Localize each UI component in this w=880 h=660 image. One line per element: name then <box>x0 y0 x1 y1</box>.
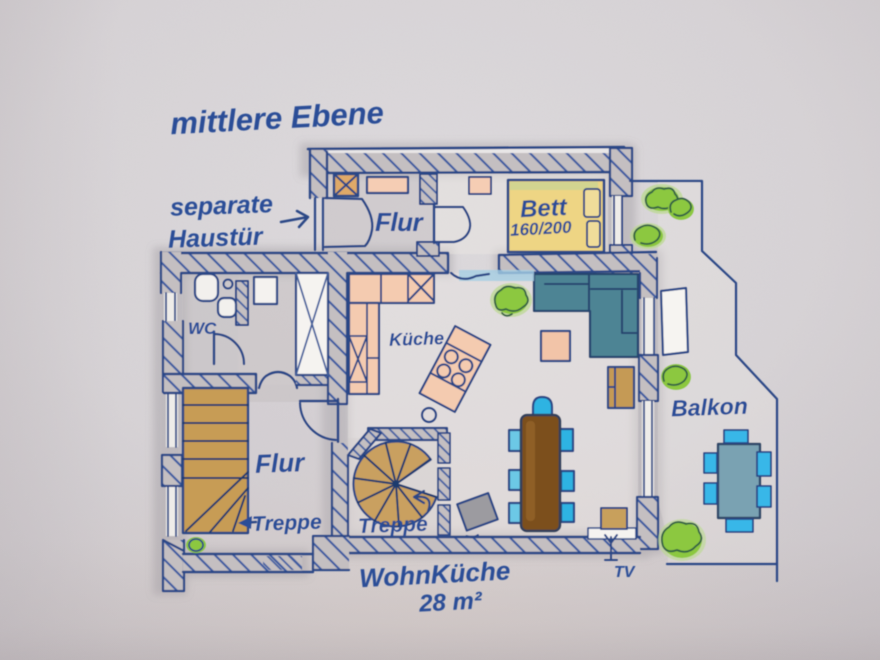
svg-text:Balkon: Balkon <box>671 393 749 422</box>
svg-text:160/200: 160/200 <box>510 218 573 240</box>
svg-text:Haustür: Haustür <box>168 222 265 253</box>
svg-text:separate: separate <box>170 190 274 222</box>
svg-text:Flur: Flur <box>255 447 307 479</box>
svg-text:WC: WC <box>188 319 217 338</box>
svg-text:Flur: Flur <box>375 207 424 237</box>
svg-text:TV: TV <box>614 564 636 581</box>
svg-text:Treppe: Treppe <box>358 513 429 538</box>
svg-text:Treppe: Treppe <box>252 511 323 536</box>
svg-text:28 m²: 28 m² <box>417 587 483 617</box>
svg-text:Küche: Küche <box>389 328 445 350</box>
